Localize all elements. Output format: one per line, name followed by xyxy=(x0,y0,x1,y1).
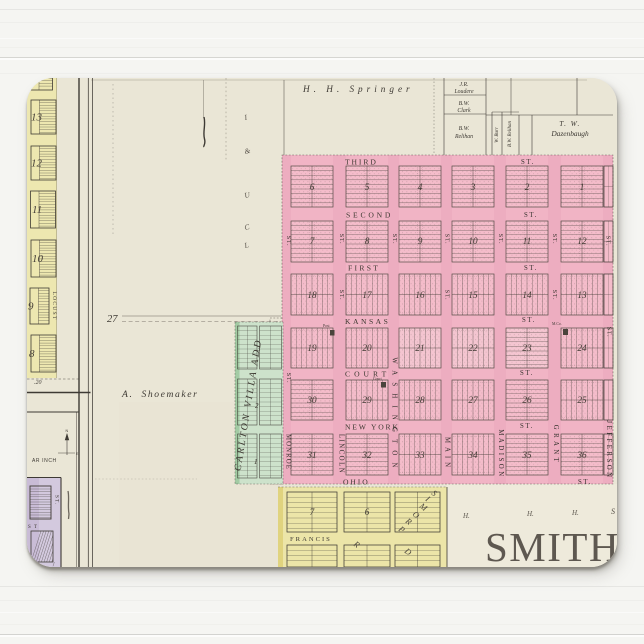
svg-text:17: 17 xyxy=(362,290,372,300)
svg-text:12: 12 xyxy=(31,158,43,170)
svg-text:KANSAS: KANSAS xyxy=(345,317,390,326)
svg-text:ST.: ST. xyxy=(497,234,504,245)
svg-text:22: 22 xyxy=(468,343,478,353)
svg-text:S T: S T xyxy=(28,525,38,530)
svg-text:ST.: ST. xyxy=(606,327,613,338)
svg-text:3: 3 xyxy=(470,182,476,192)
svg-text:S: S xyxy=(611,507,615,516)
svg-text:A. Shoemaker: A. Shoemaker xyxy=(121,389,198,400)
svg-text:Dazenbaugh: Dazenbaugh xyxy=(550,129,589,138)
svg-text:Relihan: Relihan xyxy=(454,134,473,140)
svg-text:14: 14 xyxy=(522,290,532,300)
svg-text:35: 35 xyxy=(521,450,532,460)
svg-text:26: 26 xyxy=(522,395,532,405)
svg-text:THIRD: THIRD xyxy=(345,158,378,167)
svg-text:8: 8 xyxy=(29,348,35,360)
svg-text:T. W.: T. W. xyxy=(559,119,581,128)
svg-text:MONROE: MONROE xyxy=(285,434,292,470)
svg-text:15: 15 xyxy=(468,290,478,300)
svg-text:FRANCIS: FRANCIS xyxy=(290,536,332,543)
svg-text:32: 32 xyxy=(361,450,372,460)
svg-text:Post: Post xyxy=(323,324,330,328)
svg-text:29: 29 xyxy=(362,395,372,405)
svg-text:6: 6 xyxy=(365,507,370,517)
svg-text:.20: .20 xyxy=(34,380,42,386)
svg-text:ST.: ST. xyxy=(605,236,612,247)
svg-text:H.: H. xyxy=(571,509,579,517)
svg-text:ST.: ST. xyxy=(54,495,60,505)
svg-text:ST.: ST. xyxy=(551,290,558,301)
svg-text:18: 18 xyxy=(307,290,317,300)
svg-text:ST.: ST. xyxy=(338,234,345,245)
svg-text:ST.: ST. xyxy=(391,234,398,245)
svg-text:ST.: ST. xyxy=(524,212,538,219)
svg-text:MAIN: MAIN xyxy=(444,437,451,471)
svg-text:9: 9 xyxy=(418,236,423,246)
svg-text:GRANT: GRANT xyxy=(552,425,559,465)
svg-text:W. Burr: W. Burr xyxy=(495,127,500,143)
svg-text:H.: H. xyxy=(526,510,534,518)
svg-text:21: 21 xyxy=(415,343,424,353)
svg-text:9: 9 xyxy=(28,301,34,313)
svg-text:MADISON: MADISON xyxy=(497,429,504,478)
svg-text:7: 7 xyxy=(310,507,315,517)
svg-text:11: 11 xyxy=(523,236,532,246)
svg-text:B.W. Relihan: B.W. Relihan xyxy=(508,120,513,147)
svg-text:4: 4 xyxy=(418,182,423,192)
svg-text:7: 7 xyxy=(310,236,315,246)
svg-text:ST.: ST. xyxy=(551,234,558,245)
svg-text:H.: H. xyxy=(462,512,470,520)
svg-text:2: 2 xyxy=(255,402,259,410)
svg-text:19: 19 xyxy=(307,343,317,353)
svg-text:LOCUST: LOCUST xyxy=(51,292,57,321)
svg-text:LINCOLN: LINCOLN xyxy=(338,434,345,474)
svg-text:11: 11 xyxy=(32,204,42,216)
svg-text:AR INCH: AR INCH xyxy=(32,458,57,464)
svg-text:ST.: ST. xyxy=(338,290,345,301)
svg-text:ST.: ST. xyxy=(444,290,451,301)
svg-text:28: 28 xyxy=(415,395,425,405)
svg-text:12: 12 xyxy=(577,236,587,246)
svg-text:ST.: ST. xyxy=(524,265,538,272)
svg-text:SECOND: SECOND xyxy=(346,211,393,220)
svg-text:30: 30 xyxy=(306,395,317,405)
svg-text:34: 34 xyxy=(467,450,478,460)
svg-text:1: 1 xyxy=(580,182,585,192)
svg-text:10: 10 xyxy=(32,253,44,265)
svg-text:ST.: ST. xyxy=(520,370,534,377)
svg-text:23: 23 xyxy=(522,343,532,353)
svg-text:27: 27 xyxy=(107,314,118,325)
svg-text:J.R.: J.R. xyxy=(459,82,468,88)
svg-text:ST.: ST. xyxy=(578,479,592,486)
svg-text:COURT: COURT xyxy=(345,370,390,379)
svg-text:ST.: ST. xyxy=(285,373,292,384)
svg-text:ST.: ST. xyxy=(444,234,451,245)
svg-text:24: 24 xyxy=(577,343,587,353)
svg-text:B.W.: B.W. xyxy=(459,101,470,107)
svg-text:6: 6 xyxy=(310,182,315,192)
svg-text:36: 36 xyxy=(576,450,587,460)
svg-text:Loudere: Loudere xyxy=(453,89,474,95)
svg-text:13: 13 xyxy=(577,290,587,300)
svg-text:33: 33 xyxy=(414,450,425,460)
svg-text:20: 20 xyxy=(362,343,372,353)
svg-text:N: N xyxy=(66,429,69,433)
svg-text:M.Co.: M.Co. xyxy=(552,322,562,326)
svg-text:25: 25 xyxy=(577,395,587,405)
svg-text:13: 13 xyxy=(31,112,43,124)
svg-text:B.W.: B.W. xyxy=(459,126,470,132)
svg-text:27: 27 xyxy=(468,395,478,405)
svg-text:10: 10 xyxy=(468,236,478,246)
svg-text:SMITH: SMITH xyxy=(485,524,617,567)
svg-text:ST.: ST. xyxy=(285,236,292,247)
svg-text:H. H. Springer: H. H. Springer xyxy=(302,84,414,94)
svg-text:8: 8 xyxy=(365,236,370,246)
svg-text:WASHINGTON: WASHINGTON xyxy=(391,357,398,474)
svg-text:1: 1 xyxy=(254,458,258,466)
svg-text:Clark: Clark xyxy=(457,108,471,114)
svg-text:2: 2 xyxy=(525,182,530,192)
svg-text:JEFFERSON: JEFFERSON xyxy=(605,420,612,479)
svg-text:FIRST: FIRST xyxy=(348,264,380,273)
svg-text:16: 16 xyxy=(415,290,425,300)
svg-text:ST.: ST. xyxy=(520,423,534,430)
svg-text:5: 5 xyxy=(365,182,370,192)
svg-text:ST.: ST. xyxy=(521,159,535,166)
svg-text:ST.: ST. xyxy=(522,317,536,324)
svg-text:31: 31 xyxy=(306,450,316,460)
svg-text:OHIO: OHIO xyxy=(343,478,370,487)
